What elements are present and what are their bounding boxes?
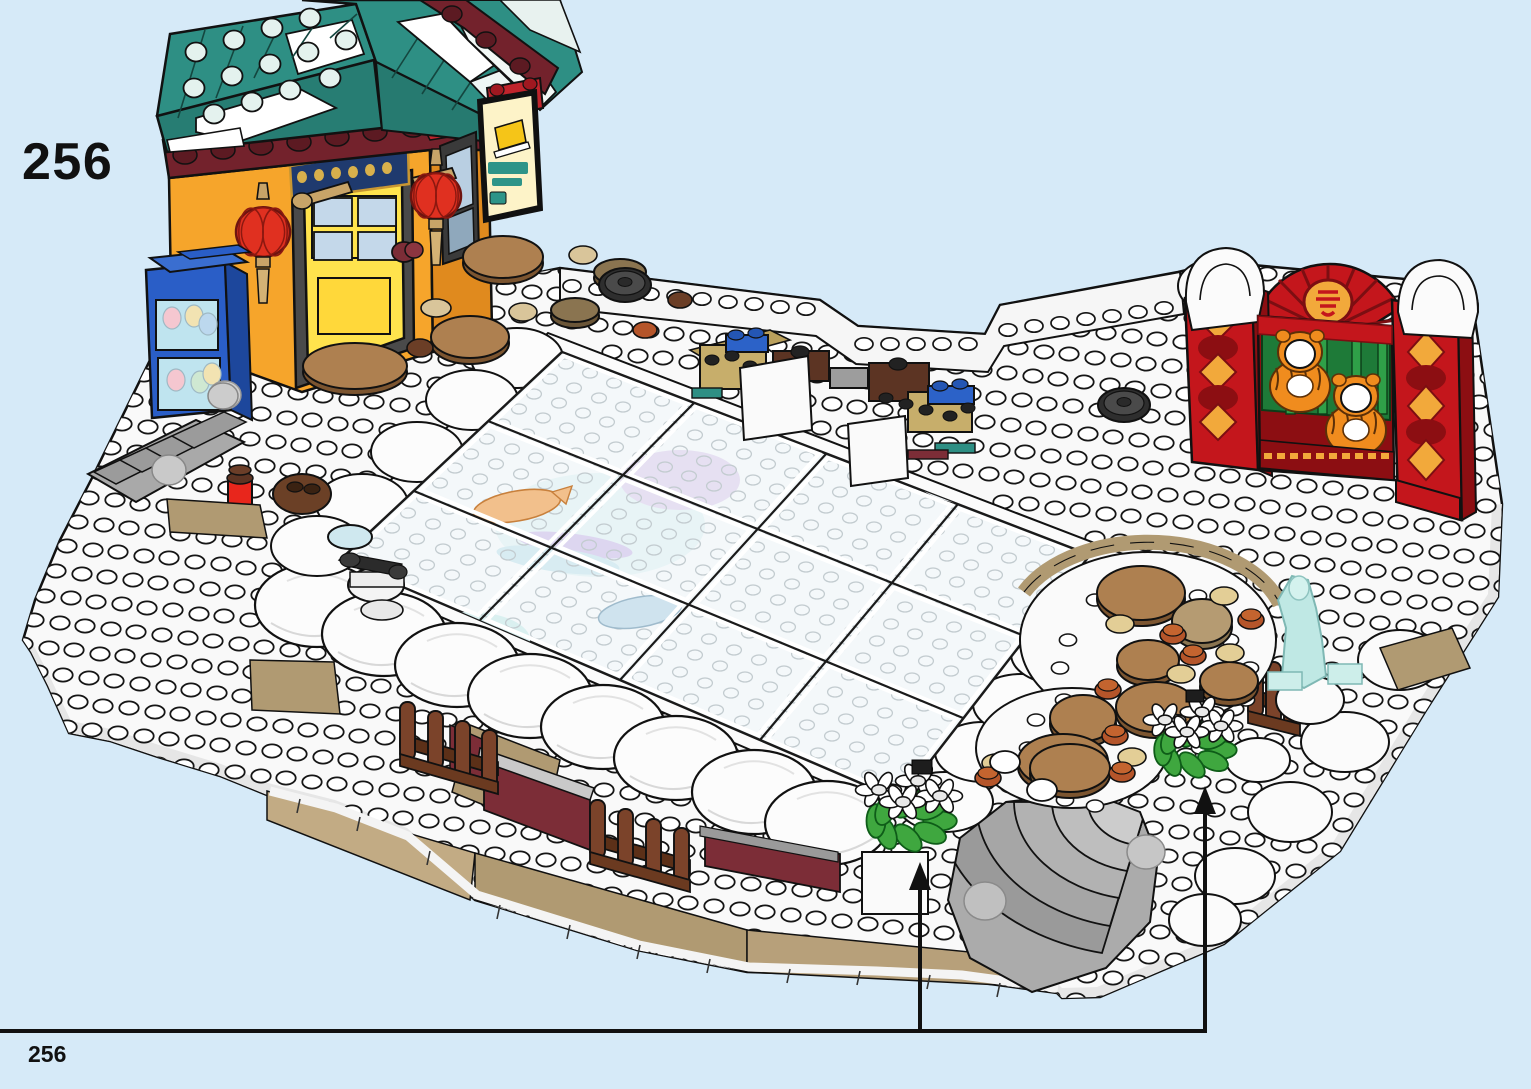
- svg-text:256: 256: [28, 1041, 66, 1067]
- svg-text:256: 256: [22, 133, 113, 191]
